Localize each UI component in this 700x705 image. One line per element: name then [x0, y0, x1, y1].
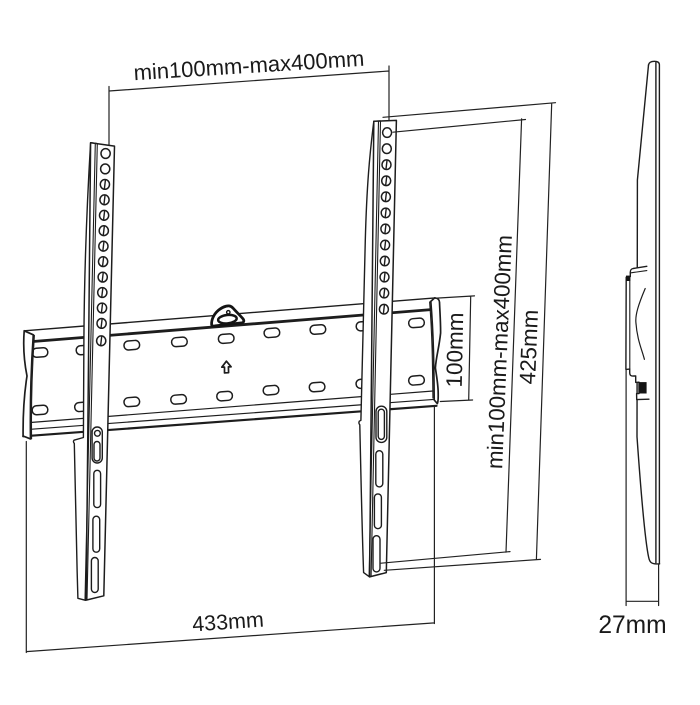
svg-text:min100mm-max400mm: min100mm-max400mm: [133, 46, 365, 85]
svg-text:433mm: 433mm: [191, 608, 264, 637]
svg-text:100mm: 100mm: [442, 312, 468, 387]
svg-text:27mm: 27mm: [598, 612, 666, 639]
svg-text:425mm: 425mm: [515, 309, 543, 385]
svg-text:min100mm-max400mm: min100mm-max400mm: [482, 234, 517, 469]
